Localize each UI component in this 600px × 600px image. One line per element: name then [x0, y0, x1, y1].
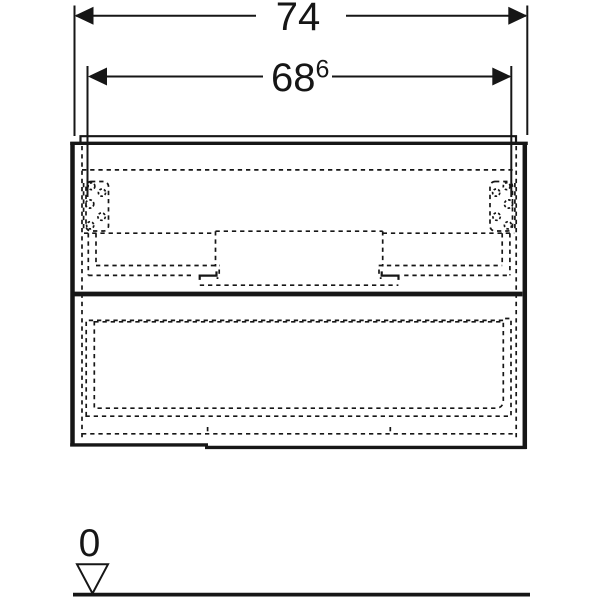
svg-text:68: 68	[271, 56, 316, 100]
svg-text:6: 6	[316, 56, 330, 84]
svg-text:0: 0	[79, 522, 101, 565]
svg-text:74: 74	[276, 0, 321, 39]
